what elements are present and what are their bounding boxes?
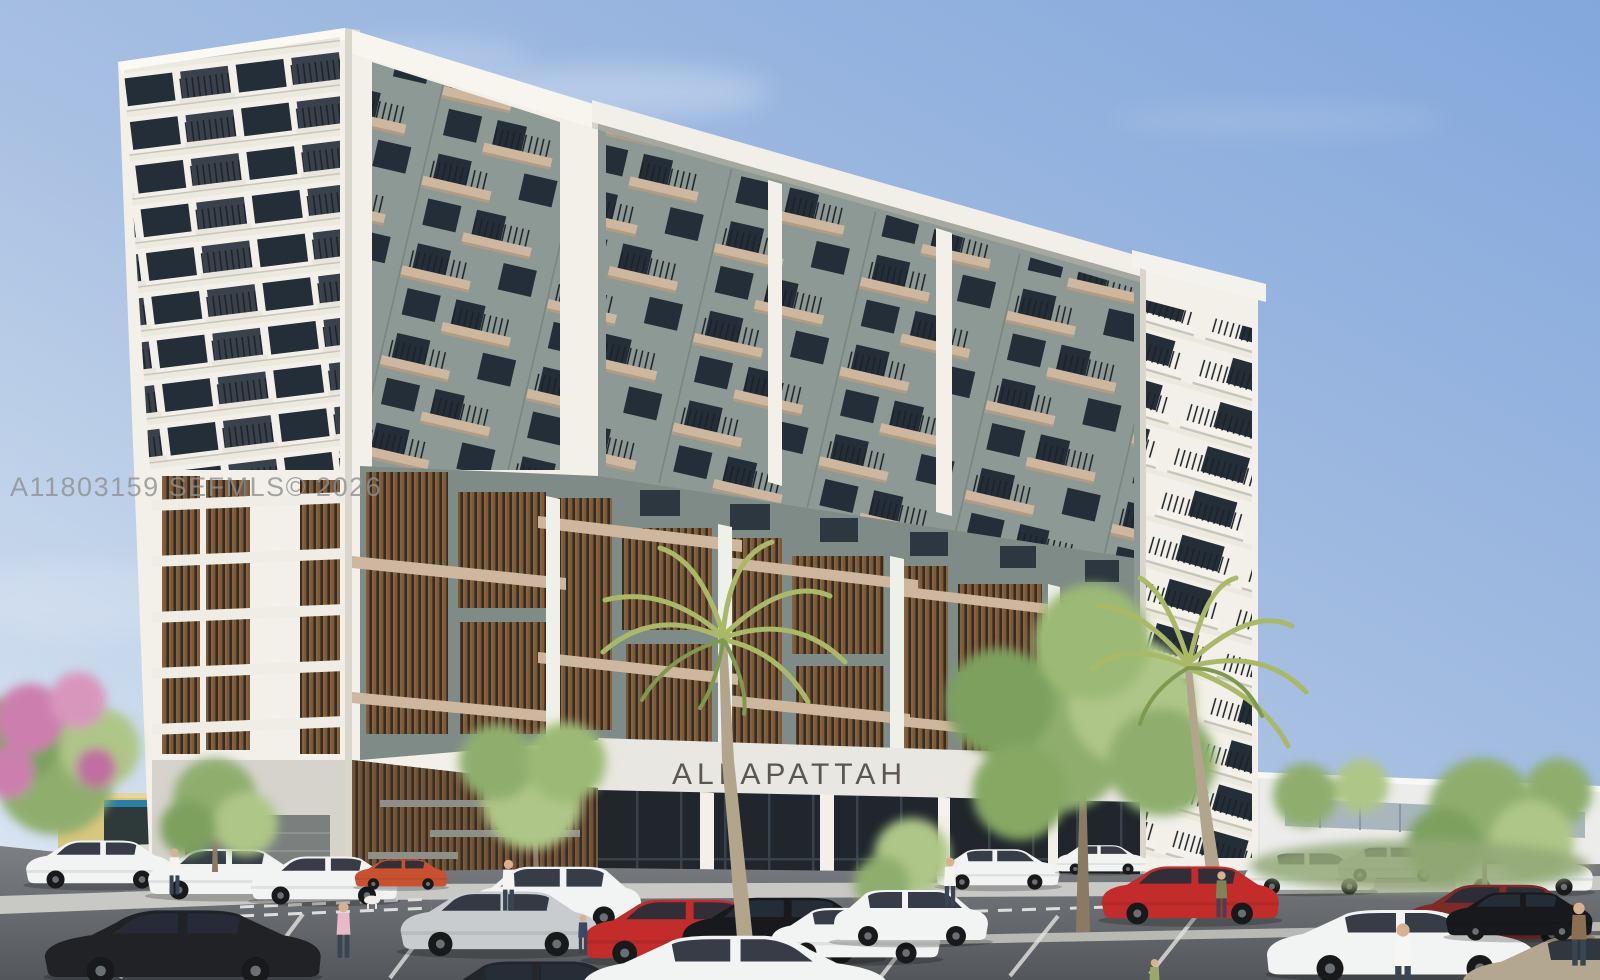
mls-watermark: A11803159 SEFMLS© 2026 <box>10 472 382 502</box>
pedestrian <box>1149 959 1159 980</box>
left-tower <box>118 28 345 878</box>
listing-photo: ALLAPATTAH <box>0 0 1600 980</box>
mid-section-floors <box>372 62 560 470</box>
facade-pier <box>768 180 782 486</box>
facade-pier <box>936 228 952 516</box>
building-sign-text: ALLAPATTAH <box>672 758 907 791</box>
wood-slat-screen <box>300 480 340 754</box>
rendering-scene: ALLAPATTAH <box>0 0 1600 980</box>
left-tower-balcony-floors <box>124 37 340 470</box>
